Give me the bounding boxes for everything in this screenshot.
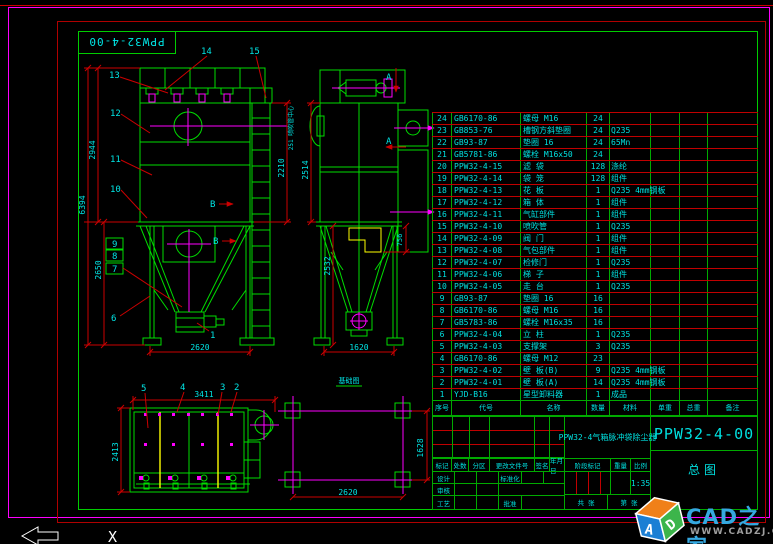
cell-material: 组件 bbox=[610, 197, 651, 208]
cell-no: 8 bbox=[432, 305, 452, 316]
cell-name: 螺栓 M16x35 bbox=[521, 317, 587, 328]
cell-total-weight bbox=[680, 161, 708, 172]
cell-total-weight bbox=[680, 329, 708, 340]
cell-unit-weight bbox=[651, 269, 680, 280]
cell-material: 组件 bbox=[610, 233, 651, 244]
table-row: 2 PPW32-4-01 壁 板(A) 14 Q235 4mm钢板 bbox=[432, 376, 758, 388]
cell-unit-weight bbox=[651, 233, 680, 244]
cell-qty: 1 bbox=[587, 233, 610, 244]
cell-remark bbox=[708, 305, 758, 316]
table-row: 15 PPW32-4-10 喷吹管 1 Q235 bbox=[432, 220, 758, 232]
cell-unit-weight bbox=[651, 317, 680, 328]
leader-11 bbox=[121, 160, 152, 175]
cell-code: PPW32-4-06 bbox=[452, 269, 521, 280]
leader-14 bbox=[165, 56, 207, 90]
drawing-number: PPW32-4-00 bbox=[650, 416, 758, 451]
cell-total-weight bbox=[680, 209, 708, 220]
watermark: A D CAD之家 WWW.CADZJ.COM bbox=[634, 495, 773, 544]
table-row: 7 GB5783-86 螺栓 M16x35 16 bbox=[432, 316, 758, 328]
cell-qty: 1 bbox=[587, 209, 610, 220]
table-row: 12 PPW32-4-07 检修门 1 Q235 bbox=[432, 256, 758, 268]
cell-unit-weight bbox=[651, 185, 680, 196]
side-centerlines bbox=[332, 79, 434, 330]
cell-name: 支撑架 bbox=[521, 341, 587, 352]
cell-code: GB93-87 bbox=[452, 293, 521, 304]
cell-qty: 24 bbox=[587, 113, 610, 124]
table-row: 5 PPW32-4-03 支撑架 3 Q235 bbox=[432, 340, 758, 352]
cell-material: Q235 bbox=[610, 329, 651, 340]
cell-name: 检修门 bbox=[521, 257, 587, 268]
cell-no: 13 bbox=[432, 245, 452, 256]
cell-remark bbox=[708, 149, 758, 160]
ucs-icon: X bbox=[22, 527, 117, 544]
cell-code: PPW32-4-15 bbox=[452, 161, 521, 172]
cell-no: 12 bbox=[432, 257, 452, 268]
cell-material: 成品 bbox=[610, 389, 651, 400]
cell-name: 垫圈 16 bbox=[521, 137, 587, 148]
cell-total-weight bbox=[680, 185, 708, 196]
cell-remark bbox=[708, 245, 758, 256]
process-sign bbox=[454, 495, 477, 510]
leader-6 bbox=[120, 296, 150, 316]
rev-date-label: 年月日 bbox=[549, 458, 565, 472]
cell-no: 1 bbox=[432, 389, 452, 400]
leader-2 bbox=[231, 392, 237, 412]
cell-code: GB5781-86 bbox=[452, 149, 521, 160]
sheet-total: 共 张 bbox=[564, 494, 608, 510]
cell-name: 螺母 M16 bbox=[521, 113, 587, 124]
balloon-5: 5 bbox=[141, 384, 146, 394]
cell-total-weight bbox=[680, 125, 708, 136]
cell-code: PPW32-4-14 bbox=[452, 173, 521, 184]
table-row: 16 PPW32-4-11 气缸部件 1 组件 bbox=[432, 208, 758, 220]
cell-unit-weight bbox=[651, 173, 680, 184]
cell-remark bbox=[708, 317, 758, 328]
balloon-14: 14 bbox=[201, 47, 212, 57]
section-a-label-2: A bbox=[386, 137, 392, 147]
cell-total-weight bbox=[680, 269, 708, 280]
rotary-discharge-valve bbox=[176, 312, 224, 332]
cell-remark bbox=[708, 329, 758, 340]
cell-material: Q235 bbox=[610, 125, 651, 136]
cell-code: PPW32-4-01 bbox=[452, 377, 521, 388]
pulse-valve-diaphragms bbox=[149, 94, 230, 102]
cell-code: GB93-87 bbox=[452, 137, 521, 148]
cell-total-weight bbox=[680, 281, 708, 292]
parts-table: 24 GB6170-86 螺母 M16 24 23 GB853-76 槽钢方斜垫… bbox=[432, 112, 758, 400]
table-row: 3 PPW32-4-02 壁 板(B) 9 Q235 4mm钢板 bbox=[432, 364, 758, 376]
table-row: 24 GB6170-86 螺母 M16 24 bbox=[432, 112, 758, 124]
dim-body-height: 2944 bbox=[88, 140, 97, 159]
cell-material: Q235 4mm钢板 bbox=[610, 365, 651, 376]
cell-total-weight bbox=[680, 305, 708, 316]
front-texts: 13 12 11 10 9 8 7 6 1 14 15 B B 6394 294… bbox=[78, 47, 286, 352]
cell-remark bbox=[708, 389, 758, 400]
table-row: 10 PPW32-4-05 走 台 1 Q235 bbox=[432, 280, 758, 292]
balloon-10: 10 bbox=[110, 185, 121, 195]
stage-mark-label: 阶段标记 bbox=[564, 458, 611, 472]
cell-no: 7 bbox=[432, 317, 452, 328]
cell-material bbox=[610, 149, 651, 160]
cell-total-weight bbox=[680, 365, 708, 376]
casing-body bbox=[140, 103, 250, 222]
cell-total-weight bbox=[680, 233, 708, 244]
cell-code: PPW32-4-08 bbox=[452, 245, 521, 256]
cell-no: 5 bbox=[432, 341, 452, 352]
header-unit-weight: 单重 bbox=[651, 401, 680, 415]
table-row: 4 GB6170-86 螺母 M12 23 bbox=[432, 352, 758, 364]
cell-remark bbox=[708, 125, 758, 136]
watermark-site: WWW.CADZJ.COM bbox=[690, 527, 773, 537]
table-row: 23 GB853-76 槽钢方斜垫圈 24 Q235 bbox=[432, 124, 758, 136]
side-view bbox=[310, 70, 428, 345]
rev-sign-label: 签名 bbox=[534, 458, 550, 472]
cell-name: 螺母 M12 bbox=[521, 353, 587, 364]
cell-total-weight bbox=[680, 173, 708, 184]
cell-no: 2 bbox=[432, 377, 452, 388]
cell-qty: 1 bbox=[587, 185, 610, 196]
cell-qty: 24 bbox=[587, 149, 610, 160]
foundation-dimensions bbox=[290, 408, 430, 500]
corner-drawing-no-box: PPW32-4-00 bbox=[78, 31, 175, 53]
balloon-7: 7 bbox=[112, 265, 117, 275]
cadzj-logo-cube: A D bbox=[634, 495, 686, 544]
cell-qty: 23 bbox=[587, 353, 610, 364]
scale-value: 1:35 bbox=[630, 471, 651, 495]
cell-no: 22 bbox=[432, 137, 452, 148]
process-date bbox=[476, 495, 499, 510]
cell-no: 20 bbox=[432, 161, 452, 172]
header-code: 代号 bbox=[452, 401, 521, 415]
cell-qty: 9 bbox=[587, 365, 610, 376]
cell-total-weight bbox=[680, 341, 708, 352]
table-row: 13 PPW32-4-08 气包部件 1 组件 bbox=[432, 244, 758, 256]
cell-no: 10 bbox=[432, 281, 452, 292]
cell-code: YJD-B16 bbox=[452, 389, 521, 400]
balloon-4: 4 bbox=[180, 383, 185, 393]
cell-remark bbox=[708, 221, 758, 232]
cell-name: 滤 袋 bbox=[521, 161, 587, 172]
cell-material: 组件 bbox=[610, 269, 651, 280]
cell-material: Q235 bbox=[610, 281, 651, 292]
cell-unit-weight bbox=[651, 209, 680, 220]
cell-no: 21 bbox=[432, 149, 452, 160]
cell-no: 3 bbox=[432, 365, 452, 376]
ucs-arrow bbox=[22, 527, 58, 544]
foundation-texts: 基础图 2620 1628 bbox=[338, 376, 425, 497]
approve-sign bbox=[521, 495, 565, 510]
cell-material: Q235 4mm钢板 bbox=[610, 185, 651, 196]
cell-code: GB6170-86 bbox=[452, 305, 521, 316]
cell-name: 气缸部件 bbox=[521, 209, 587, 220]
cell-material: 65Mn bbox=[610, 137, 651, 148]
cell-code: GB6170-86 bbox=[452, 353, 521, 364]
cell-remark bbox=[708, 269, 758, 280]
table-row: 9 GB93-87 垫圈 16 16 bbox=[432, 292, 758, 304]
section-b-label-2: B bbox=[213, 237, 218, 247]
cell-code: PPW32-4-09 bbox=[452, 233, 521, 244]
watermark-brand: CAD之家 bbox=[686, 501, 773, 544]
cell-unit-weight bbox=[651, 305, 680, 316]
cell-qty: 16 bbox=[587, 293, 610, 304]
cell-total-weight bbox=[680, 293, 708, 304]
dim-inlet-height: 756 bbox=[396, 234, 404, 247]
cell-unit-weight bbox=[651, 197, 680, 208]
cell-name: 立 柱 bbox=[521, 329, 587, 340]
table-row: 1 YJD-B16 星型卸料器 1 成品 bbox=[432, 388, 758, 400]
cell-material: 涤纶 bbox=[610, 161, 651, 172]
cell-remark bbox=[708, 341, 758, 352]
cell-code: GB6170-86 bbox=[452, 113, 521, 124]
weight-value bbox=[610, 471, 631, 495]
cell-qty: 128 bbox=[587, 173, 610, 184]
cell-material bbox=[610, 113, 651, 124]
balloon-12: 12 bbox=[110, 109, 121, 119]
cell-no: 9 bbox=[432, 293, 452, 304]
dim-side-body: 2514 bbox=[301, 160, 310, 179]
balloon-13: 13 bbox=[109, 71, 120, 81]
cell-total-weight bbox=[680, 353, 708, 364]
cell-qty: 128 bbox=[587, 161, 610, 172]
cell-unit-weight bbox=[651, 161, 680, 172]
header-qty: 数量 bbox=[587, 401, 610, 415]
cell-name: 槽钢方斜垫圈 bbox=[521, 125, 587, 136]
cell-remark bbox=[708, 257, 758, 268]
table-row: 20 PPW32-4-15 滤 袋 128 涤纶 bbox=[432, 160, 758, 172]
cell-unit-weight bbox=[651, 257, 680, 268]
cell-total-weight bbox=[680, 149, 708, 160]
weight-label: 重量 bbox=[610, 458, 631, 472]
cell-name: 喷吹管 bbox=[521, 221, 587, 232]
cad-drawing-canvas: 13 12 11 10 9 8 7 6 1 14 15 B B 6394 294… bbox=[0, 0, 773, 544]
process-label: 工艺 bbox=[432, 495, 455, 510]
cell-code: PPW32-4-12 bbox=[452, 197, 521, 208]
cell-total-weight bbox=[680, 197, 708, 208]
cell-no: 18 bbox=[432, 185, 452, 196]
front-view bbox=[106, 68, 274, 345]
header-no: 序号 bbox=[432, 401, 452, 415]
dim-side-lower: 2532 bbox=[323, 256, 332, 275]
leader-4 bbox=[177, 392, 184, 412]
cell-code: GB5783-86 bbox=[452, 317, 521, 328]
balloon-6: 6 bbox=[111, 314, 116, 324]
foundation-view bbox=[285, 386, 410, 487]
table-row: 8 GB6170-86 螺母 M16 16 bbox=[432, 304, 758, 316]
leader-12 bbox=[121, 114, 150, 133]
cell-unit-weight bbox=[651, 125, 680, 136]
cell-qty: 1 bbox=[587, 389, 610, 400]
cell-no: 17 bbox=[432, 197, 452, 208]
cell-unit-weight bbox=[651, 281, 680, 292]
cell-total-weight bbox=[680, 137, 708, 148]
cell-qty: 1 bbox=[587, 281, 610, 292]
cell-material: 组件 bbox=[610, 209, 651, 220]
cell-unit-weight bbox=[651, 293, 680, 304]
cell-total-weight bbox=[680, 257, 708, 268]
inlet-detail-yellow bbox=[349, 228, 381, 252]
cell-name: 花 板 bbox=[521, 185, 587, 196]
cell-code: PPW32-4-07 bbox=[452, 257, 521, 268]
cell-code: PPW32-4-11 bbox=[452, 209, 521, 220]
cell-qty: 1 bbox=[587, 269, 610, 280]
cell-code: PPW32-4-13 bbox=[452, 185, 521, 196]
cell-code: PPW32-4-10 bbox=[452, 221, 521, 232]
section-b-label-1: B bbox=[210, 200, 215, 210]
cell-qty: 3 bbox=[587, 341, 610, 352]
cell-qty: 1 bbox=[587, 257, 610, 268]
ucs-x-label: X bbox=[108, 528, 117, 544]
cell-no: 11 bbox=[432, 269, 452, 280]
plan-fan-centerlines bbox=[250, 410, 279, 440]
dim-foundation-depth: 1628 bbox=[416, 438, 425, 457]
front-centerlines bbox=[150, 108, 287, 312]
scale-label: 比例 bbox=[630, 458, 651, 472]
cell-code: PPW32-4-04 bbox=[452, 329, 521, 340]
cell-name: 走 台 bbox=[521, 281, 587, 292]
cell-unit-weight bbox=[651, 329, 680, 340]
cell-remark bbox=[708, 365, 758, 376]
cell-code: GB853-76 bbox=[452, 125, 521, 136]
cell-unit-weight bbox=[651, 365, 680, 376]
front-dimensions bbox=[84, 56, 291, 356]
balloon-8: 8 bbox=[112, 252, 117, 262]
cell-material bbox=[610, 317, 651, 328]
cell-no: 16 bbox=[432, 209, 452, 220]
cell-unit-weight bbox=[651, 341, 680, 352]
cell-qty: 24 bbox=[587, 125, 610, 136]
cell-no: 19 bbox=[432, 173, 452, 184]
corner-drawing-no: PPW32-4-00 bbox=[88, 36, 164, 49]
dim-front-width: 2620 bbox=[190, 343, 209, 352]
cell-name: 阀 门 bbox=[521, 233, 587, 244]
table-row: 17 PPW32-4-12 箱 体 1 组件 bbox=[432, 196, 758, 208]
cell-material bbox=[610, 353, 651, 364]
cell-no: 23 bbox=[432, 125, 452, 136]
cell-unit-weight bbox=[651, 137, 680, 148]
foundation-label: 基础图 bbox=[339, 376, 360, 385]
dim-right-height: 2210 bbox=[277, 158, 286, 177]
cell-remark bbox=[708, 209, 758, 220]
product-title: PPW32-4气箱脉冲袋除尘器 bbox=[564, 416, 651, 459]
cell-remark bbox=[708, 281, 758, 292]
dim-plan-width: 3411 bbox=[194, 390, 213, 399]
table-row: 6 PPW32-4-04 立 柱 1 Q235 bbox=[432, 328, 758, 340]
cell-name: 螺母 M16 bbox=[521, 305, 587, 316]
blowpipe-note: 251 喷吹管中心 bbox=[287, 106, 295, 150]
header-total-weight: 总重 bbox=[680, 401, 708, 415]
cell-unit-weight bbox=[651, 389, 680, 400]
cell-unit-weight bbox=[651, 377, 680, 388]
leader-13 bbox=[120, 77, 168, 93]
cell-qty: 16 bbox=[587, 317, 610, 328]
cell-total-weight bbox=[680, 317, 708, 328]
table-row: 19 PPW32-4-14 袋 笼 128 组件 bbox=[432, 172, 758, 184]
balloon-9: 9 bbox=[112, 240, 117, 250]
leader-10 bbox=[121, 190, 147, 218]
cell-qty: 1 bbox=[587, 197, 610, 208]
cell-name: 螺栓 M16x50 bbox=[521, 149, 587, 160]
section-a-label-1: A bbox=[386, 73, 392, 83]
cell-total-weight bbox=[680, 221, 708, 232]
table-row: 21 GB5781-86 螺栓 M16x50 24 bbox=[432, 148, 758, 160]
cell-qty: 1 bbox=[587, 245, 610, 256]
cell-no: 15 bbox=[432, 221, 452, 232]
cell-remark bbox=[708, 185, 758, 196]
cell-remark bbox=[708, 293, 758, 304]
cell-qty: 1 bbox=[587, 221, 610, 232]
balloon-3: 3 bbox=[220, 383, 225, 393]
cell-qty: 16 bbox=[587, 305, 610, 316]
cell-material: 组件 bbox=[610, 173, 651, 184]
cell-no: 4 bbox=[432, 353, 452, 364]
cell-name: 梯 子 bbox=[521, 269, 587, 280]
table-row: 18 PPW32-4-13 花 板 1 Q235 4mm钢板 bbox=[432, 184, 758, 196]
cell-remark bbox=[708, 173, 758, 184]
cell-material bbox=[610, 305, 651, 316]
cell-no: 6 bbox=[432, 329, 452, 340]
cell-remark bbox=[708, 197, 758, 208]
cell-remark bbox=[708, 137, 758, 148]
cell-unit-weight bbox=[651, 149, 680, 160]
cell-name: 袋 笼 bbox=[521, 173, 587, 184]
cell-name: 垫圈 16 bbox=[521, 293, 587, 304]
header-remark: 备注 bbox=[708, 401, 758, 415]
table-row: 22 GB93-87 垫圈 16 24 65Mn bbox=[432, 136, 758, 148]
cell-qty: 24 bbox=[587, 137, 610, 148]
cell-name: 箱 体 bbox=[521, 197, 587, 208]
cell-material: Q235 bbox=[610, 257, 651, 268]
table-row: 14 PPW32-4-09 阀 门 1 组件 bbox=[432, 232, 758, 244]
cell-name: 星型卸料器 bbox=[521, 389, 587, 400]
rev-count-label: 处数 bbox=[451, 458, 469, 472]
cell-code: PPW32-4-02 bbox=[452, 365, 521, 376]
balloon-15: 15 bbox=[249, 47, 260, 57]
header-name: 名称 bbox=[521, 401, 587, 415]
cell-remark bbox=[708, 233, 758, 244]
cell-total-weight bbox=[680, 389, 708, 400]
cell-remark bbox=[708, 113, 758, 124]
cell-unit-weight bbox=[651, 353, 680, 364]
header-material: 材料 bbox=[610, 401, 651, 415]
cell-remark bbox=[708, 353, 758, 364]
balloon-11: 11 bbox=[110, 155, 121, 165]
side-texts: A A 2514 2532 756 1620 251 喷吹管中心 bbox=[287, 73, 404, 352]
rev-doc-label: 更改文件号 bbox=[489, 458, 535, 472]
leader-5 bbox=[145, 393, 148, 428]
leader-987 bbox=[123, 268, 182, 307]
plan-bolt-marks bbox=[139, 413, 233, 480]
cell-no: 14 bbox=[432, 233, 452, 244]
cell-unit-weight bbox=[651, 245, 680, 256]
cell-material: Q235 bbox=[610, 341, 651, 352]
cell-material bbox=[610, 293, 651, 304]
parts-table-header: 序号 代号 名称 数量 材料 单重 总重 备注 bbox=[432, 400, 758, 416]
cell-qty: 1 bbox=[587, 329, 610, 340]
cell-remark bbox=[708, 377, 758, 388]
cell-total-weight bbox=[680, 113, 708, 124]
balloon-2: 2 bbox=[234, 383, 239, 393]
cell-material: 组件 bbox=[610, 245, 651, 256]
table-row: 11 PPW32-4-06 梯 子 1 组件 bbox=[432, 268, 758, 280]
foundation-centerlines bbox=[278, 396, 417, 494]
cell-qty: 14 bbox=[587, 377, 610, 388]
cell-unit-weight bbox=[651, 113, 680, 124]
dim-foundation-width: 2620 bbox=[338, 488, 357, 497]
approve-label: 批准 bbox=[498, 495, 522, 510]
dim-plan-depth: 2413 bbox=[111, 442, 120, 461]
cell-name: 壁 板(A) bbox=[521, 377, 587, 388]
cell-total-weight bbox=[680, 377, 708, 388]
